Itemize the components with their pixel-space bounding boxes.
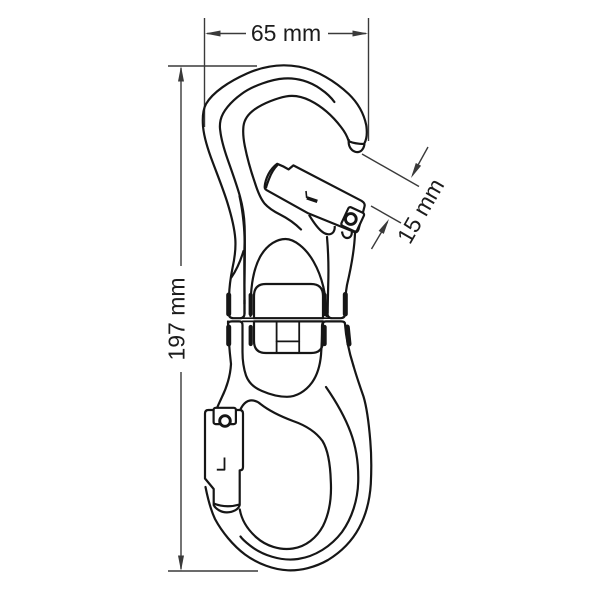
svg-text:15 mm: 15 mm (392, 174, 450, 248)
svg-text:197 mm: 197 mm (164, 277, 190, 360)
svg-text:65 mm: 65 mm (251, 20, 321, 46)
